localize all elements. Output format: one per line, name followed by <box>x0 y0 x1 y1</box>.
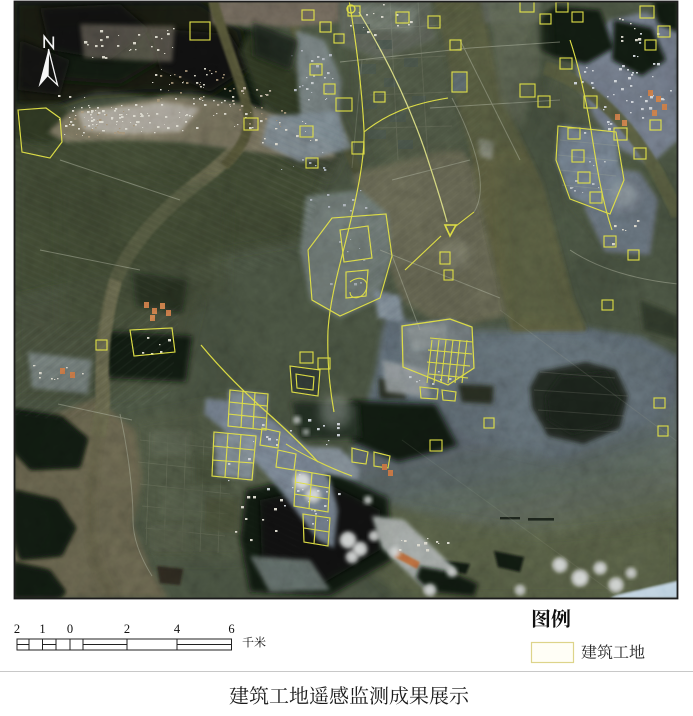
svg-text:2: 2 <box>14 622 20 636</box>
svg-text:6: 6 <box>228 622 234 636</box>
svg-text:2: 2 <box>124 622 130 636</box>
svg-text:0: 0 <box>67 622 73 636</box>
svg-text:1: 1 <box>39 622 45 636</box>
svg-text:4: 4 <box>174 622 181 636</box>
